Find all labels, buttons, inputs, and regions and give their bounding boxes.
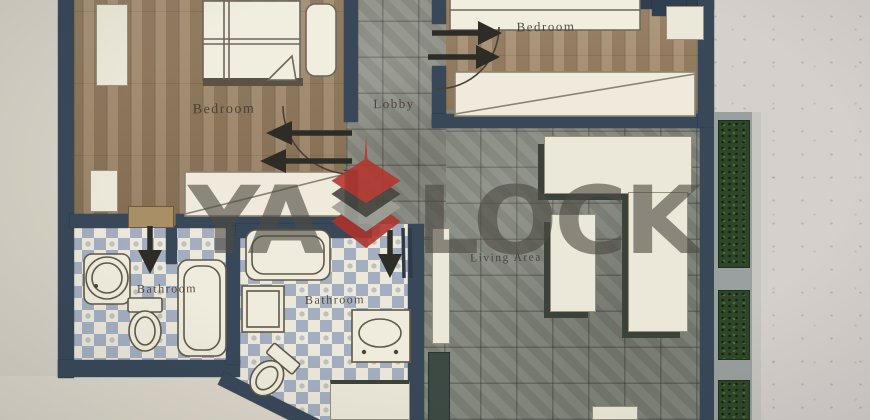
sofa-vertical — [628, 192, 688, 332]
cabinet-dark — [428, 352, 450, 420]
wall-outer-right-lower — [700, 128, 714, 420]
wall-bathroom-living-divider — [408, 224, 424, 420]
armchair — [550, 214, 596, 312]
floor-plan-photo: Bedroom Lobby Bedroom Bathroom Bathroom … — [0, 0, 870, 420]
tv-stand — [592, 406, 638, 420]
wall-bathroom-center-top — [236, 224, 372, 238]
room-label-living-area: Living Area — [470, 252, 542, 265]
dresser-bedroom-left — [90, 170, 118, 212]
hedge-top — [718, 120, 750, 268]
room-label-lobby: Lobby — [373, 96, 415, 113]
wall-outer-left — [58, 0, 74, 378]
wall-bedroom-left-right-lower — [344, 170, 358, 228]
room-label-bedroom-left: Bedroom — [193, 102, 256, 119]
wall-bedroom-right-bottom — [432, 114, 714, 128]
door-leaf-bathroom-left — [128, 206, 174, 228]
wall-between-bathrooms — [226, 226, 240, 364]
lobby-floor — [346, 0, 446, 238]
room-label-bathroom-center: Bathroom — [305, 292, 365, 308]
paper-fold-edge — [752, 112, 761, 420]
nightstand-bedroom-right — [666, 6, 704, 40]
room-label-bedroom-right: Bedroom — [516, 19, 575, 36]
hedge-middle — [718, 290, 750, 360]
wall-bathroom-left-stub — [166, 226, 177, 264]
floor-plan: Bedroom Lobby Bedroom Bathroom Bathroom … — [0, 0, 870, 420]
room-label-bathroom-left: Bathroom — [137, 281, 197, 297]
sideboard-white — [432, 228, 450, 344]
sofa-horizontal — [544, 136, 692, 194]
wall-bedroom-left-right-upper — [344, 0, 358, 122]
hedge-bottom — [718, 380, 750, 420]
wall-bedroom-right-left-upper — [432, 0, 446, 24]
wall-bathroom-left-bottom — [58, 360, 240, 377]
paper-background-left — [0, 0, 60, 420]
bathroom-counter — [330, 380, 410, 420]
wardrobe-tall-left — [96, 4, 128, 86]
wall-bedroom-bath-divider-a — [70, 214, 128, 228]
